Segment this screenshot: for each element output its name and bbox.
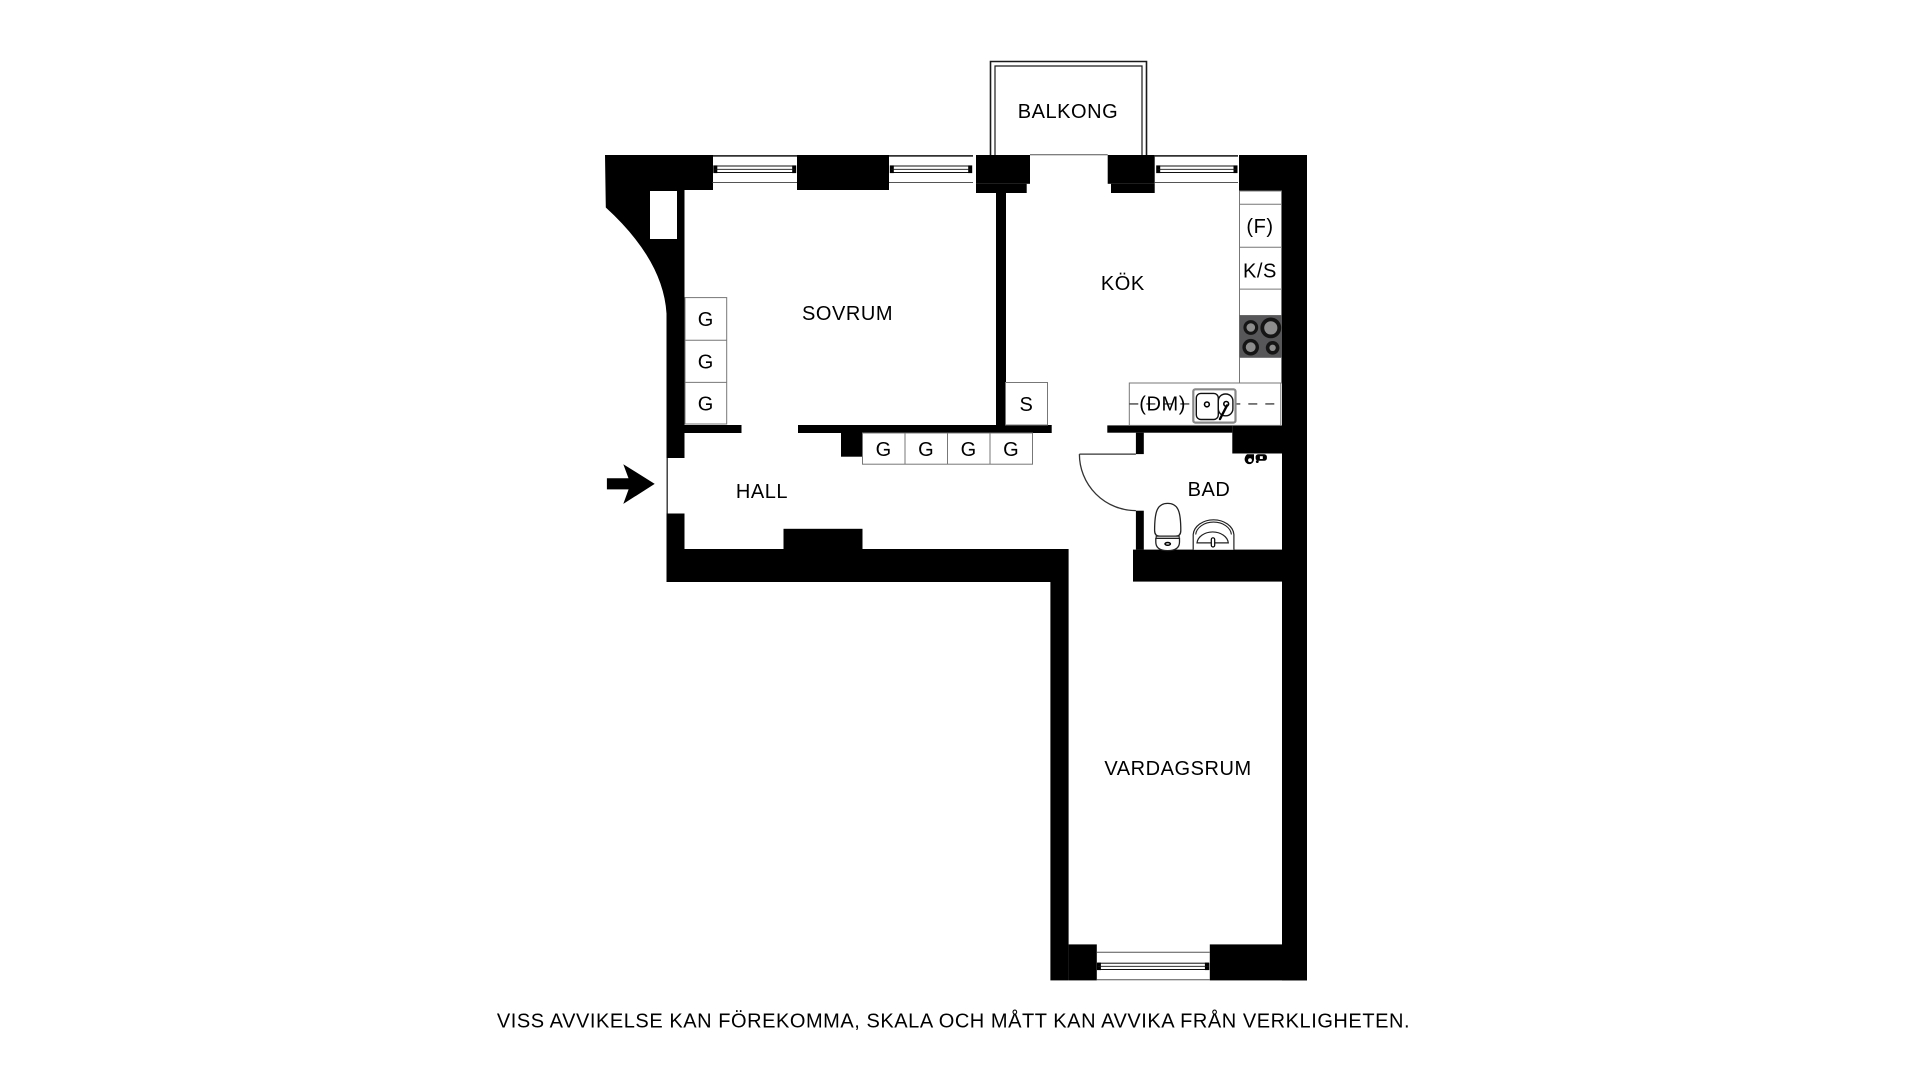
svg-text:BALKONG: BALKONG bbox=[1018, 101, 1119, 123]
svg-text:KÖK: KÖK bbox=[1101, 273, 1145, 295]
svg-text:HALL: HALL bbox=[736, 481, 788, 503]
svg-text:G: G bbox=[918, 439, 934, 461]
svg-text:(DM): (DM) bbox=[1139, 393, 1186, 415]
svg-text:VISS AVVIKELSE KAN FÖREKOMMA,: VISS AVVIKELSE KAN FÖREKOMMA, SKALA OCH … bbox=[497, 1010, 1410, 1033]
svg-text:SOVRUM: SOVRUM bbox=[802, 303, 893, 325]
svg-text:G: G bbox=[1003, 439, 1019, 461]
svg-text:G: G bbox=[876, 439, 892, 461]
svg-text:BAD: BAD bbox=[1188, 479, 1231, 501]
svg-text:K/S: K/S bbox=[1243, 261, 1277, 283]
svg-text:VARDAGSRUM: VARDAGSRUM bbox=[1104, 758, 1251, 780]
svg-text:S: S bbox=[1020, 394, 1034, 416]
svg-text:G: G bbox=[698, 393, 714, 415]
svg-text:G: G bbox=[698, 352, 714, 374]
svg-text:G: G bbox=[698, 309, 714, 331]
svg-text:(F): (F) bbox=[1246, 216, 1273, 238]
svg-text:G: G bbox=[961, 439, 977, 461]
